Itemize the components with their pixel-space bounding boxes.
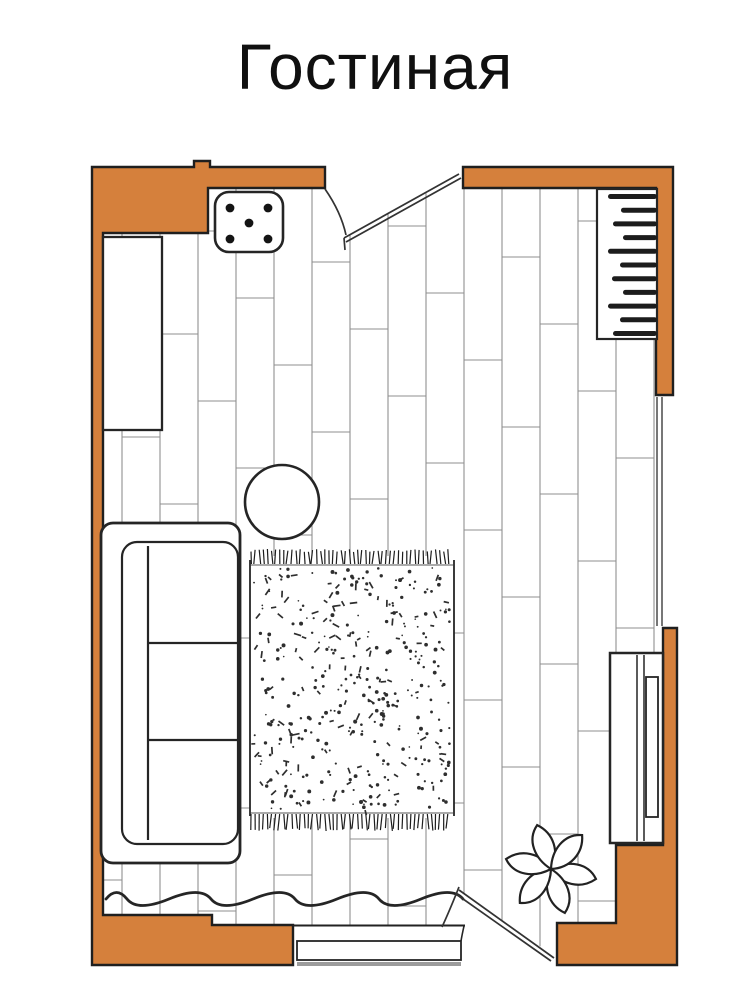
doorway-threshold-icon [293,926,465,965]
window-icon [657,397,662,626]
radiator-icon [597,189,657,339]
sofa-icon [101,523,240,863]
rug-icon [250,549,454,831]
cabinet-icon [103,237,162,430]
floor-plan-page: Гостиная [0,0,750,1000]
stool-icon [215,192,283,252]
tv-stand-icon [610,653,663,843]
floor-plan-drawing [0,0,750,1000]
round-coffee-table-icon [245,465,319,539]
